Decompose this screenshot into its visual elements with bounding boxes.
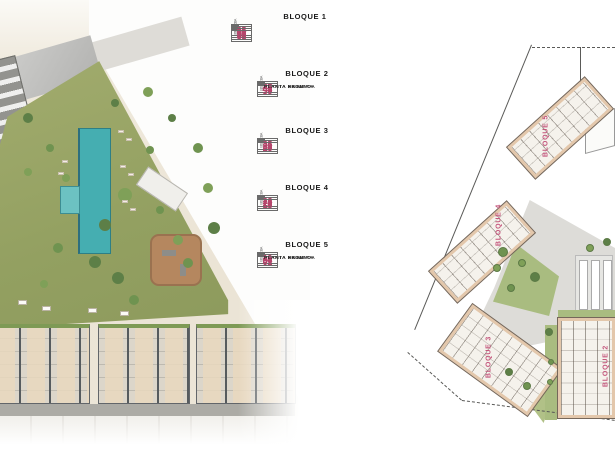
tree-icon	[603, 238, 611, 246]
tree-icon	[23, 113, 33, 123]
render-right-fade	[238, 300, 310, 454]
parked-car	[88, 308, 97, 313]
plan-label-bloque-3: BLOQUE 3	[486, 336, 493, 378]
tree-icon	[129, 295, 139, 305]
tree-icon	[505, 368, 513, 376]
tree-icon	[518, 259, 526, 267]
left-aerial-render	[0, 0, 310, 454]
townhouse-row-block	[0, 324, 90, 404]
tree-icon	[111, 99, 119, 107]
tree-icon	[40, 280, 48, 288]
tree-icon	[547, 379, 553, 385]
tree-icon	[507, 284, 515, 292]
tree-icon	[99, 219, 111, 231]
sun-lounger	[128, 173, 134, 176]
sun-lounger	[58, 172, 64, 175]
tree-icon	[168, 114, 176, 122]
sun-lounger	[126, 138, 132, 141]
site-plan-sheet: BLOQUE 166636057545165ESC.A6259ESC.B5653…	[0, 0, 615, 454]
tree-icon	[62, 174, 70, 182]
parked-car	[42, 306, 51, 311]
tree-icon	[586, 244, 594, 252]
tree-icon	[24, 168, 32, 176]
sun-lounger	[62, 160, 68, 163]
sun-lounger	[118, 130, 124, 133]
parked-car	[18, 300, 27, 305]
right-site-plan: BLOQUE 5 BLOQUE 4 BLOQUE 3 BLOQUE 2	[385, 30, 615, 430]
tree-icon	[193, 143, 203, 153]
tree-icon	[498, 247, 508, 257]
tree-icon	[548, 359, 554, 365]
tree-icon	[173, 235, 183, 245]
tree-icon	[203, 183, 213, 193]
sun-lounger	[122, 200, 128, 203]
parked-car	[120, 311, 129, 316]
tree-icon	[208, 222, 220, 234]
tree-icon	[523, 382, 531, 390]
tree-icon	[545, 328, 553, 336]
tree-icon	[183, 258, 193, 268]
plan-label-bloque-2: BLOQUE 2	[603, 345, 610, 387]
tree-icon	[89, 256, 101, 268]
plan-label-bloque-5: BLOQUE 5	[543, 115, 550, 157]
tree-icon	[112, 272, 124, 284]
sun-lounger	[120, 165, 126, 168]
sun-lounger	[130, 208, 136, 211]
tree-icon	[46, 144, 54, 152]
tree-icon	[530, 272, 540, 282]
townhouse-row-block	[98, 324, 190, 404]
tree-icon	[156, 206, 164, 214]
tree-icon	[53, 243, 63, 253]
plan-label-bloque-4: BLOQUE 4	[496, 204, 503, 246]
tree-icon	[146, 146, 154, 154]
tree-icon	[493, 264, 501, 272]
tree-icon	[143, 87, 153, 97]
